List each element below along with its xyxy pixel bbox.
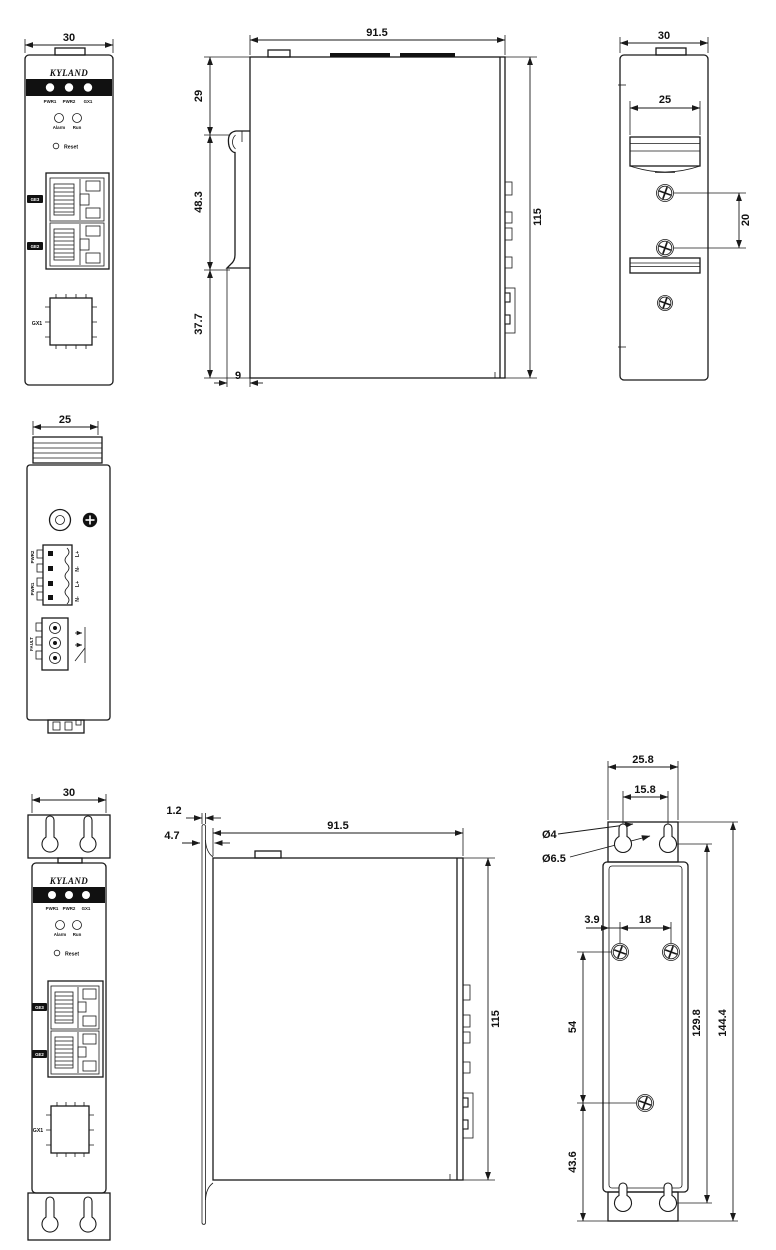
dim-label-bracket-thickness: 1.2 xyxy=(166,805,181,817)
label-reset: Reset xyxy=(65,952,79,958)
led-label-pwr2: PWR2 xyxy=(63,906,76,911)
port-label-gx1: GX1 xyxy=(32,321,42,327)
dim-width: 30 xyxy=(32,787,106,813)
port-label-ge2: GE2 xyxy=(35,1052,44,1057)
led-alarm-icon xyxy=(55,114,64,123)
port-label-ge3: GE3 xyxy=(35,1005,44,1010)
dim-label-height-overall: 115 xyxy=(490,1010,502,1028)
dim-label-clip-to-bottom: 37.7 xyxy=(193,313,205,334)
view-front-din-rail: 30 KYLAND PWR1 PWR2 GX1 Alarm Run Reset xyxy=(10,15,140,405)
wall-bracket-top xyxy=(28,815,110,858)
case-screw xyxy=(658,296,673,311)
sfp-port: GX1 xyxy=(33,1102,94,1157)
relay-contact-icon xyxy=(75,627,85,663)
dim-label-keyhole-dia-large: Ø6.5 xyxy=(542,853,566,865)
port-label-ge3: GE3 xyxy=(31,197,40,202)
port-label-gx1: GX1 xyxy=(33,1128,43,1134)
side-port-bumps xyxy=(463,985,473,1138)
din-clip-lower-plate xyxy=(630,258,700,273)
dim-screw-offsets: 3.9 18 xyxy=(584,914,671,943)
ground-screw-icon xyxy=(83,513,97,527)
dim-label-width-overall: 30 xyxy=(63,32,75,44)
dim-width: 30 xyxy=(25,32,113,53)
dim-screw-to-bottom: 43.6 xyxy=(567,1103,608,1221)
reset-hole-icon xyxy=(53,143,59,149)
dim-screw-pitch-v: 54 xyxy=(567,952,636,1103)
led-pwr1-icon xyxy=(48,891,56,899)
top-tab xyxy=(255,851,281,858)
status-leds: Alarm Run xyxy=(53,114,82,131)
case-screw xyxy=(637,1095,654,1112)
reset-hole-icon xyxy=(54,950,60,956)
device-body-top xyxy=(27,465,110,720)
keyhole-slot xyxy=(42,816,58,852)
led-run-icon xyxy=(73,921,82,930)
dim-label-rail-screw-pitch: 20 xyxy=(740,214,752,226)
reset-button: Reset xyxy=(53,143,78,150)
dim-width: 30 xyxy=(620,30,708,53)
dim-height: 115 xyxy=(463,858,502,1180)
keyhole-slot xyxy=(80,816,96,852)
dim-label-screw-edge-offset: 3.9 xyxy=(584,914,599,926)
top-tab xyxy=(55,48,85,55)
top-vent-strip xyxy=(330,53,390,57)
label-reset: Reset xyxy=(64,145,78,151)
bottom-connector-top-view xyxy=(48,720,84,733)
keyhole-slot xyxy=(615,824,632,853)
dim-depth: 91.5 xyxy=(250,27,505,55)
device-body xyxy=(32,863,106,1193)
wall-bracket-bottom xyxy=(28,1193,110,1240)
label-fault: FAULT xyxy=(29,637,34,651)
view-side-din-rail: 91.5 29 48.3 37.7 9 115 xyxy=(185,15,580,405)
device-body-side xyxy=(213,858,463,1180)
din-clip-top xyxy=(33,437,102,463)
dim-bracket-thickness: 1.2 xyxy=(166,805,221,824)
din-rail-clip xyxy=(227,131,250,387)
dim-rail-screw-pitch: 20 xyxy=(674,193,752,248)
led-pwr2-icon xyxy=(65,891,73,899)
led-label-pwr1: PWR1 xyxy=(44,99,57,104)
wall-bracket-plate xyxy=(202,825,213,1225)
dim-label-bracket-height: 144.4 xyxy=(717,1008,729,1036)
keyhole-slot xyxy=(42,1197,58,1232)
power-terminal: PWR2 PWR1 L+ N- L+ N- xyxy=(30,545,81,605)
dim-label-top-to-clip: 29 xyxy=(193,90,205,102)
dim-label-width-overall: 30 xyxy=(63,787,75,799)
keyhole-slot xyxy=(660,824,677,853)
view-side-wall-mount: 1.2 4.7 91.5 115 xyxy=(150,780,530,1250)
led-pwr2-icon xyxy=(65,83,73,91)
case-screw xyxy=(663,944,680,961)
brand-logo: KYLAND xyxy=(49,876,89,886)
keyhole-slot xyxy=(80,1197,96,1232)
led-bar: PWR1 PWR2 GX1 xyxy=(33,887,105,911)
dim-label-screw-pitch-h: 18 xyxy=(639,914,651,926)
dim-label-bracket-offset: 4.7 xyxy=(164,830,179,842)
dim-rail-width: 25 xyxy=(630,94,700,135)
dim-label-depth-overall: 91.5 xyxy=(366,27,387,39)
dim-label-keyhole-pitch: 15.8 xyxy=(634,784,655,796)
dim-label-keyhole-dia-small: Ø4 xyxy=(542,829,558,841)
drawing-canvas: 30 KYLAND PWR1 PWR2 GX1 Alarm Run Reset xyxy=(0,0,776,1250)
led-pwr1-icon xyxy=(46,83,54,91)
dim-label-clip-length: 48.3 xyxy=(193,191,205,212)
view-top: 25 PWR2 PWR1 L+ N- L+ N- FAULT xyxy=(15,405,155,750)
pin-label-2: N- xyxy=(75,566,81,572)
dim-label-screw-to-bottom: 43.6 xyxy=(567,1151,579,1172)
led-label-pwr2: PWR2 xyxy=(63,99,76,104)
keyhole-slot xyxy=(615,1183,632,1212)
keyhole-callouts: Ø4 Ø6.5 xyxy=(542,824,650,865)
rj45-ports: GE3 GE2 xyxy=(27,173,109,269)
relay-terminal: FAULT xyxy=(29,618,85,670)
rj45-ports: GE3 GE2 xyxy=(32,981,103,1077)
dim-label-top-width: 25 xyxy=(59,414,71,426)
led-bar: PWR1 PWR2 GX1 xyxy=(26,79,112,104)
led-alarm-icon xyxy=(56,921,65,930)
dim-label-keyhole-span-v: 129.8 xyxy=(691,1009,703,1037)
dim-top-width: 25 xyxy=(33,414,98,435)
top-vent-strip xyxy=(400,53,455,57)
dim-label-rail-width: 25 xyxy=(659,94,671,106)
reset-button: Reset xyxy=(54,950,79,957)
led-label-gx1: GX1 xyxy=(82,906,91,911)
top-tab xyxy=(268,50,290,57)
view-rear-din-rail: 30 25 20 xyxy=(600,15,776,405)
device-body-rear xyxy=(603,862,688,1192)
led-label-pwr1: PWR1 xyxy=(46,906,59,911)
dim-label-screw-pitch-v: 54 xyxy=(567,1020,579,1033)
keyhole-slot xyxy=(660,1183,677,1212)
dim-label-height-overall: 115 xyxy=(532,208,544,226)
label-run: Run xyxy=(73,932,82,937)
top-tab xyxy=(58,858,82,863)
top-tab xyxy=(656,48,686,55)
dim-depth: 91.5 xyxy=(213,820,463,856)
dim-label-width-overall: 30 xyxy=(658,30,670,42)
pin-label-1: L+ xyxy=(75,551,81,557)
led-gx1-icon xyxy=(84,83,92,91)
rail-screw-top xyxy=(657,185,674,202)
dim-height: 115 xyxy=(505,57,544,378)
din-clip-plate xyxy=(630,137,700,173)
view-front-wall-mount: 30 KYLAND PWR1 PWR2 GX1 Alarm Run Reset xyxy=(10,780,140,1250)
case-screw xyxy=(612,944,629,961)
sfp-port: GX1 xyxy=(32,294,97,349)
console-hole-icon xyxy=(50,510,71,531)
dim-label-clip-inset: 9 xyxy=(235,370,241,382)
dim-label-bracket-width: 25.8 xyxy=(632,754,653,766)
status-leds: Alarm Run xyxy=(54,921,82,938)
port-label-ge2: GE2 xyxy=(31,244,40,249)
led-gx1-icon xyxy=(82,891,90,899)
label-run: Run xyxy=(73,125,82,130)
led-label-gx1: GX1 xyxy=(84,99,93,104)
dim-left-chain: 29 48.3 37.7 xyxy=(193,57,250,378)
wall-bracket-bottom xyxy=(608,1183,678,1221)
led-run-icon xyxy=(73,114,82,123)
dim-label-depth-overall: 91.5 xyxy=(327,820,348,832)
label-alarm: Alarm xyxy=(54,932,67,937)
dim-bracket-offset: 4.7 xyxy=(164,830,230,843)
dim-keyhole-pitch: 15.8 xyxy=(623,784,668,824)
device-body-side xyxy=(250,57,505,378)
wall-bracket-top xyxy=(608,822,678,862)
brand-logo: KYLAND xyxy=(49,68,89,78)
dim-bracket-height: 144.4 xyxy=(678,822,738,1221)
label-pwr1: PWR1 xyxy=(30,582,35,595)
pin-label-4: N- xyxy=(75,596,81,602)
side-port-bumps xyxy=(505,182,515,333)
device-body xyxy=(25,55,113,385)
rail-screw-bottom xyxy=(657,240,674,257)
label-alarm: Alarm xyxy=(53,125,66,130)
label-pwr2: PWR2 xyxy=(30,550,35,563)
view-rear-wall-mount: 25.8 15.8 Ø4 Ø6.5 3.9 18 xyxy=(540,745,776,1250)
pin-label-3: L+ xyxy=(75,581,81,587)
